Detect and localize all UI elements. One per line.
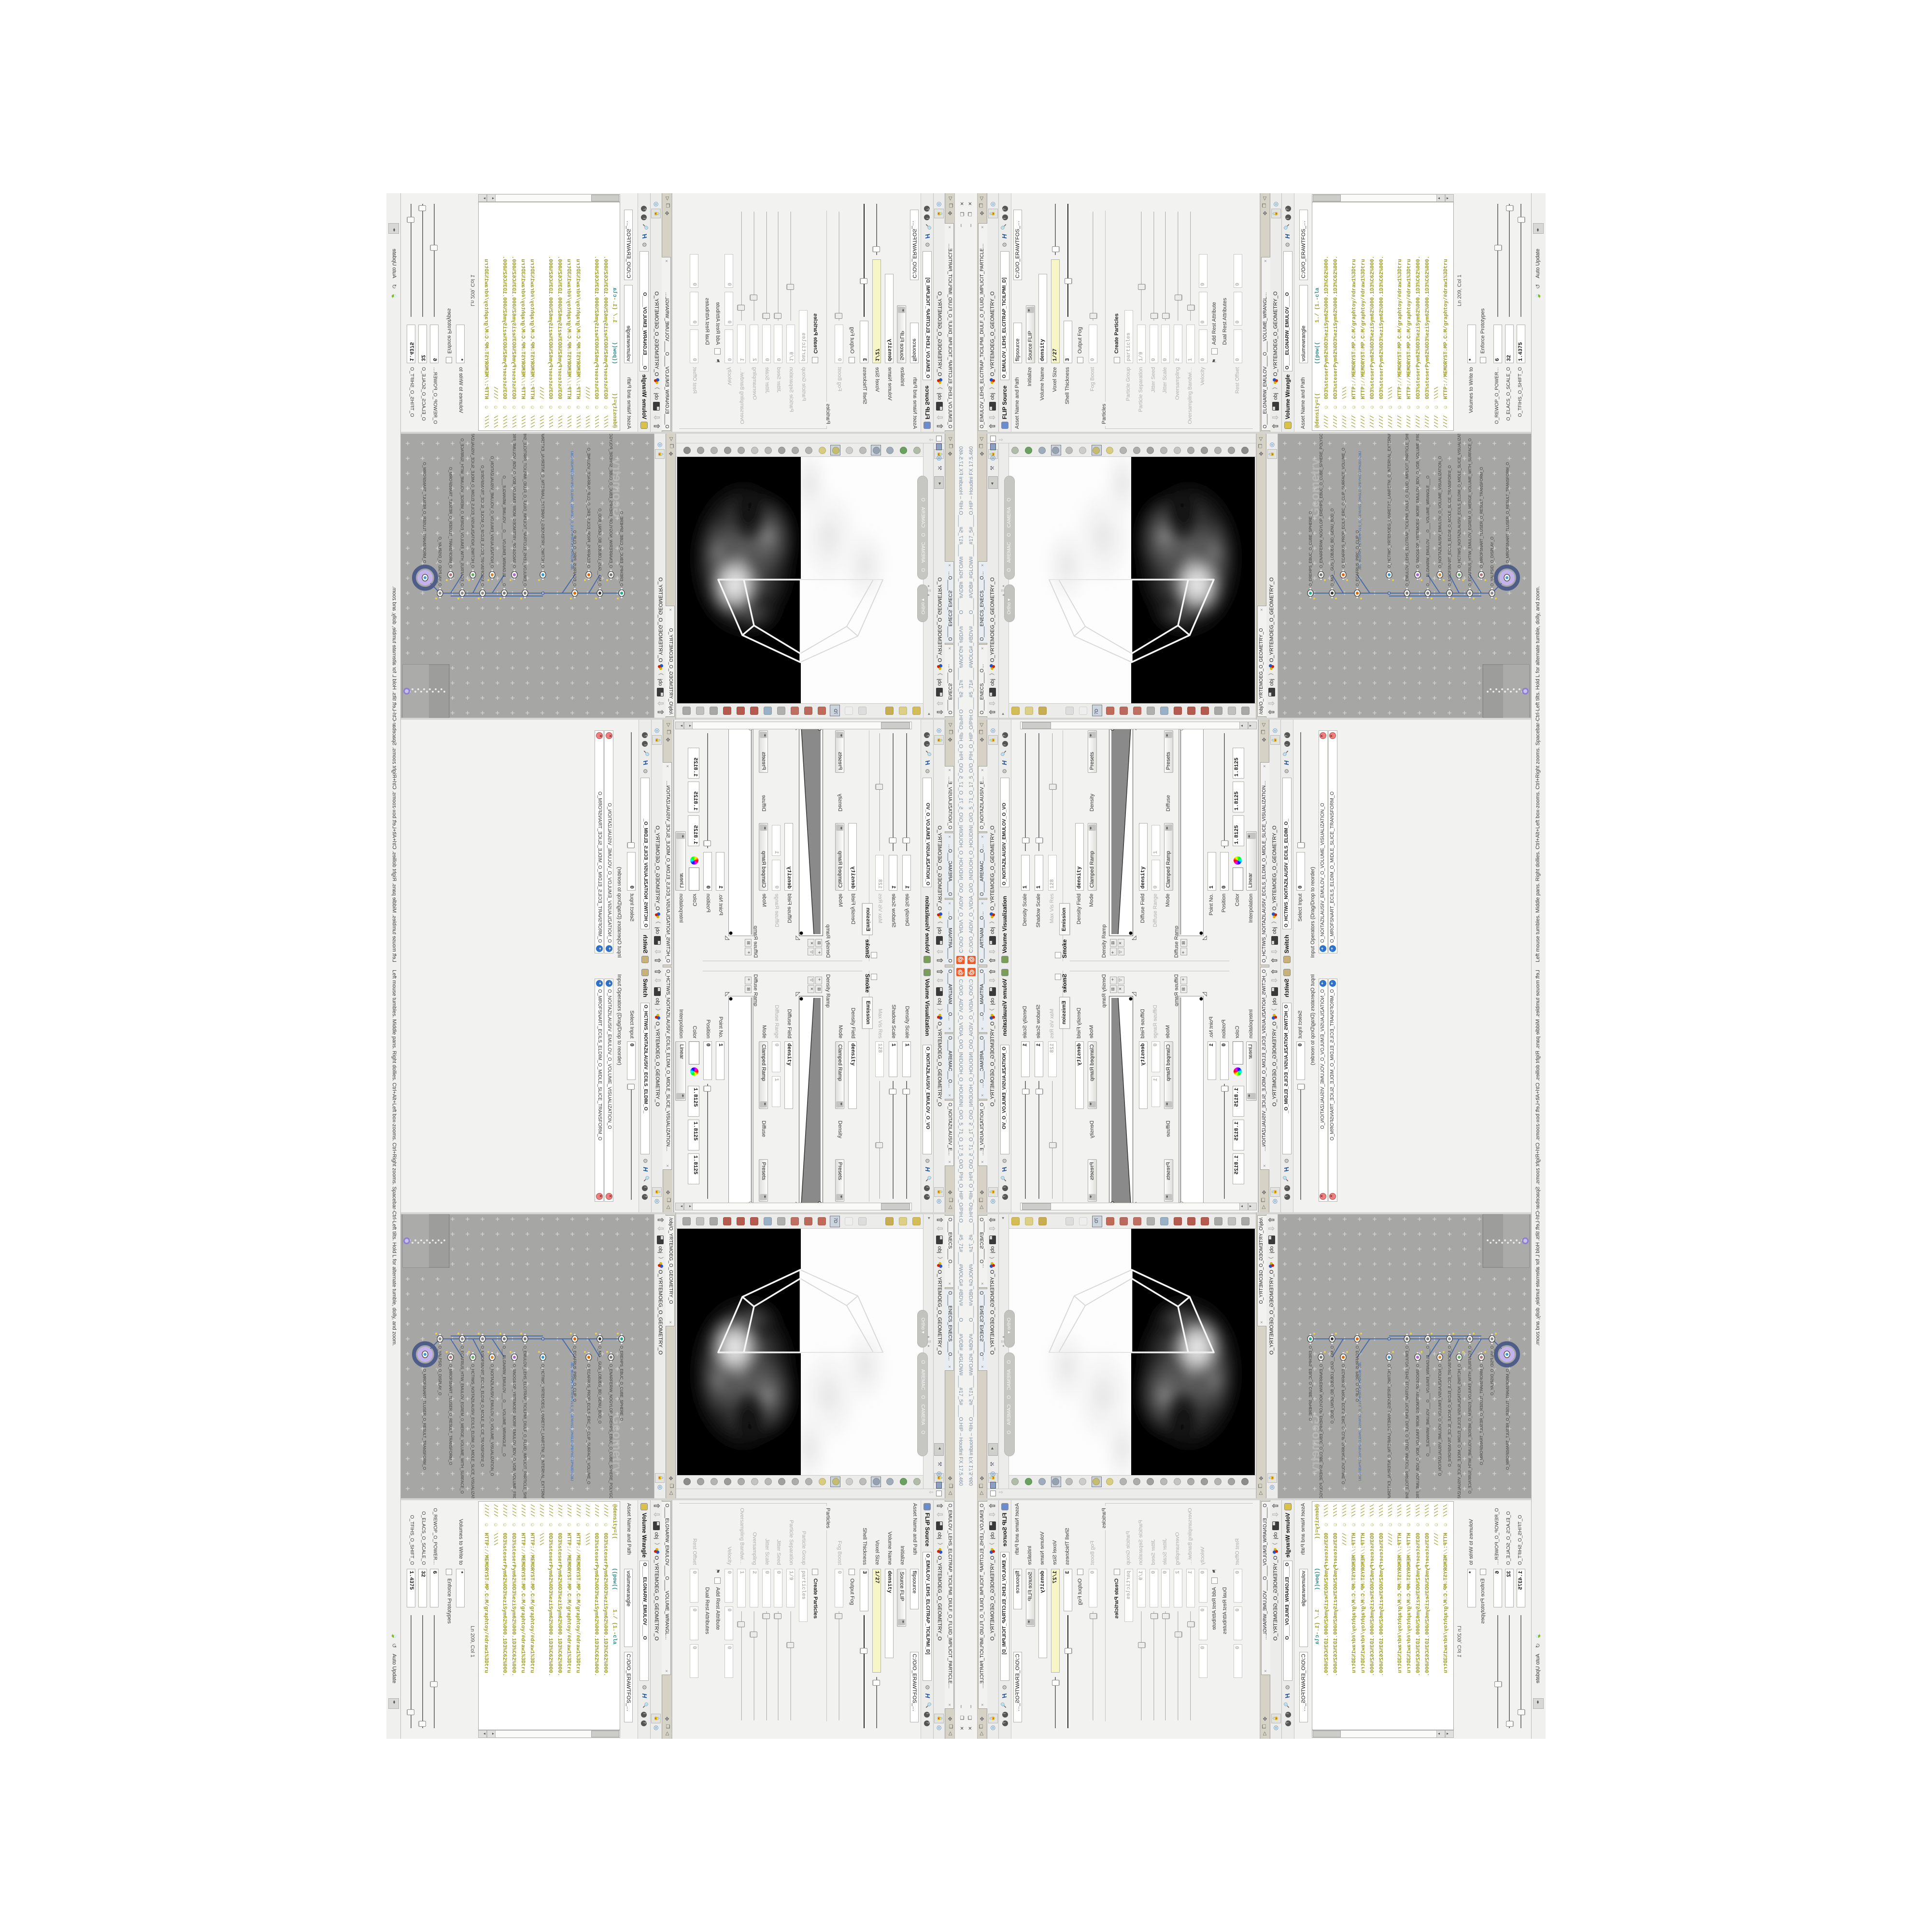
svg-text:O_EREHPS_EBUC_O_CUBE_SPHERE_O: O_EREHPS_EBUC_O_CUBE_SPHERE_O — [1308, 511, 1313, 586]
svg-text:O_HCTIWS_NOITAZILAUSIV_ECILS_E: O_HCTIWS_NOITAZILAUSIV_ECILS_ELDIM_O_MID… — [470, 1364, 475, 1498]
svg-text:O_EREHPS_EBUC_O_CUBE_SPHERE_O: O_EREHPS_EBUC_O_CUBE_SPHERE_O — [1308, 1346, 1313, 1421]
svg-text:O_HCTIWS_YRTEMOEG_LANRETXE_LAN: O_HCTIWS_YRTEMOEG_LANRETXE_LANRETNI_O_IN… — [540, 434, 545, 568]
svg-text:O_HCTIWS_NOITAZILAUSIV_ECILS_E: O_HCTIWS_NOITAZILAUSIV_ECILS_ELDIM_O_MID… — [1457, 1364, 1462, 1498]
svg-text:O_SNOGILOP_YRTEMOEG_MORF_EMULO: O_SNOGILOP_YRTEMOEG_MORF_EMULOV_BDV_O_VD… — [512, 434, 516, 568]
svg-text:O_EMULOV_LEHS_ELCITRAP_TICILPM: O_EMULOV_LEHS_ELCITRAP_TICILPMI_DIULF_O_… — [523, 1346, 527, 1498]
svg-text:O_ECAFRUS_PROP_ECILS_ERC_O_CLI: O_ECAFRUS_PROP_ECILS_ERC_O_CLIP_SURFACE_… — [1341, 448, 1346, 568]
svg-text:O_MROFSNART_TLUSER_O_RESULT_TR: O_MROFSNART_TLUSER_O_RESULT_TRANSFORM_O — [448, 1364, 453, 1465]
svg-text:O_SNOGILOP_YRTEMOEG_MORF_EMULO: O_SNOGILOP_YRTEMOEG_MORF_EMULOV_BDV_O_VD… — [1416, 434, 1420, 568]
svg-text:O_MROFSNART_ECILS_ELDIM_O_MIDL: O_MROFSNART_ECILS_ELDIM_O_MIDLE_SLICE_TR… — [480, 1346, 484, 1467]
svg-text:O_MO__GUS_LOBJEG_BD_GENU_BOD_O: O_MO__GUS_LOBJEG_BD_GENU_BOD_O — [597, 509, 602, 586]
svg-text:O_ENARFERIW_NOGYLOP_EREHPS_EBU: O_ENARFERIW_NOGYLOP_EREHPS_EBUC_O_CUBE_S… — [1319, 434, 1323, 568]
svg-text:O___ELGNARW_EMULOV___O___VOLUM: O___ELGNARW_EMULOV___O___VOLUME_WRANGLE_… — [1426, 476, 1430, 586]
svg-text:O_NOITAZILAUSIV_EMULOV_O_VOLUM: O_NOITAZILAUSIV_EMULOV_O_VOLUME_VISUALIZ… — [490, 456, 494, 568]
svg-text:O_EMULOV_LEHS_ELCITRAP_TICILPM: O_EMULOV_LEHS_ELCITRAP_TICILPMI_DIULF_O_… — [1405, 434, 1409, 586]
svg-text:O_NOITAZILAUSIV_EMULOV_O_VOLUM: O_NOITAZILAUSIV_EMULOV_O_VOLUME_VISUALIZ… — [1438, 456, 1442, 568]
svg-text:O_EMULOV_LEHS_ELCITRAP_TICILPM: O_EMULOV_LEHS_ELCITRAP_TICILPMI_DIULF_O_… — [523, 434, 527, 586]
svg-text:O_MROFSNART_ECILS_ELDIM_O_MIDL: O_MROFSNART_ECILS_ELDIM_O_MIDLE_SLICE_TR… — [480, 465, 484, 586]
svg-text:O_MO__GUS_LOBJEG_BD_GENU_BOD_O: O_MO__GUS_LOBJEG_BD_GENU_BOD_O — [1330, 1346, 1335, 1423]
svg-text:O_ENARFERIW_NOGYLOP_EREHPS_EBU: O_ENARFERIW_NOGYLOP_EREHPS_EBUC_O_CUBE_S… — [609, 1364, 613, 1498]
svg-text:O_ECAFRUS_PROP_ECILS_ERC_O_CLI: O_ECAFRUS_PROP_ECILS_ERC_O_CLIP_SURFACE_… — [586, 1364, 591, 1484]
svg-text:O_NOITAZILAUSIV_EMULOV_O_VOLUM: O_NOITAZILAUSIV_EMULOV_O_VOLUME_VISUALIZ… — [1438, 1364, 1442, 1476]
svg-text:O___ELGNARW_EMULOV___O___VOLUM: O___ELGNARW_EMULOV___O___VOLUME_WRANGLE_… — [502, 1346, 506, 1456]
svg-text:O_SNOGILOP_YRTEMOEG_MORF_EMULO: O_SNOGILOP_YRTEMOEG_MORF_EMULOV_BDV_O_VD… — [512, 1364, 516, 1498]
svg-text:O_YALPSID_O_DISPLAY_O: O_YALPSID_O_DISPLAY_O — [438, 537, 442, 586]
svg-text:O_ENARFERIW_NOGYLOP_EREHPS_EBU: O_ENARFERIW_NOGYLOP_EREHPS_EBUC_O_CUBE_S… — [609, 434, 613, 568]
svg-text:JBO.MO3%PETS.YRI%PVLS_O_GENVIS: JBO.MO3%PETS.YRI%PVLS_O_GENVISS_O%SLD%PB… — [570, 451, 573, 570]
svg-text:O_HCTIWS_YRTEMOEG_LANRETXE_LAN: O_HCTIWS_YRTEMOEG_LANRETXE_LANRETNI_O_IN… — [540, 1364, 545, 1498]
svg-text:O_ECAFRUS_PROP_ECILS_ERC_O_CLI: O_ECAFRUS_PROP_ECILS_ERC_O_CLIP_SURFACE_… — [1341, 1364, 1346, 1484]
svg-text:O_HCTIWS_NOITAZILAUSIV_ECILS_E: O_HCTIWS_NOITAZILAUSIV_ECILS_ELDIM_O_MID… — [1457, 434, 1462, 568]
svg-text:JBO.MO3%PETS.YRI%PVLS_O_GENVIS: JBO.MO3%PETS.YRI%PVLS_O_GENVISS_O%SLD%PB… — [570, 1362, 573, 1481]
svg-text:O_MROFSNART_TLUSER_O_RESULT_TR: O_MROFSNART_TLUSER_O_RESULT_TRANSFORM_O — [448, 467, 453, 568]
svg-text:O_ECAFRUS_PROP_ECILS_ERC_O_CLI: O_ECAFRUS_PROP_ECILS_ERC_O_CLIP_SURFACE_… — [586, 448, 591, 568]
svg-text:O_MROFSNART_TLUSER_O_RESULT_TR: O_MROFSNART_TLUSER_O_RESULT_TRANSFORM_O — [1479, 1364, 1484, 1465]
svg-text:O_EREHPS_EBUC_O_CUBE_SPHERE_O: O_EREHPS_EBUC_O_CUBE_SPHERE_O — [619, 511, 624, 586]
svg-text:O_HCTIWS_YRTEMOEG_LANRETXE_LAN: O_HCTIWS_YRTEMOEG_LANRETXE_LANRETNI_O_IN… — [1387, 1364, 1392, 1498]
svg-text:O_MROFSNART_ECILS_ELDIM_O_MIDL: O_MROFSNART_ECILS_ELDIM_O_MIDLE_SLICE_TR… — [1448, 465, 1452, 586]
svg-text:O_YALPSID_O_DISPLAY_O: O_YALPSID_O_DISPLAY_O — [1490, 537, 1494, 586]
svg-text:O_YALPSID_O_DISPLAY_O: O_YALPSID_O_DISPLAY_O — [438, 1346, 442, 1395]
svg-text:O_YALPSID_O_DISPLAY_O: O_YALPSID_O_DISPLAY_O — [1490, 1346, 1494, 1395]
svg-text:O_MO__GUS_LOBJEG_BD_GENU_BOD_O: O_MO__GUS_LOBJEG_BD_GENU_BOD_O — [1330, 509, 1335, 586]
svg-text:O_ENARFERIW_NOGYLOP_EREHPS_EBU: O_ENARFERIW_NOGYLOP_EREHPS_EBUC_O_CUBE_S… — [1319, 1364, 1323, 1498]
svg-text:O_EMULOV_LEHS_ELCITRAP_TICILPM: O_EMULOV_LEHS_ELCITRAP_TICILPMI_DIULF_O_… — [1405, 1346, 1409, 1498]
svg-text:O_EREHPS_EBUC_O_CUBE_SPHERE_O: O_EREHPS_EBUC_O_CUBE_SPHERE_O — [619, 1346, 624, 1421]
svg-text:O_MROFSNART_ECILS_ELDIM_O_MIDL: O_MROFSNART_ECILS_ELDIM_O_MIDLE_SLICE_TR… — [1448, 1346, 1452, 1467]
svg-text:O_HCTIWS_NOITAZILAUSIV_ECILS_E: O_HCTIWS_NOITAZILAUSIV_ECILS_ELDIM_O_MID… — [470, 434, 475, 568]
svg-text:O_MO__GUS_LOBJEG_BD_GENU_BOD_O: O_MO__GUS_LOBJEG_BD_GENU_BOD_O — [597, 1346, 602, 1423]
svg-text:O_SNOGILOP_YRTEMOEG_MORF_EMULO: O_SNOGILOP_YRTEMOEG_MORF_EMULOV_BDV_O_VD… — [1416, 1364, 1420, 1498]
svg-text:O___ELGNARW_EMULOV___O___VOLUM: O___ELGNARW_EMULOV___O___VOLUME_WRANGLE_… — [1426, 1346, 1430, 1456]
svg-text:O___ELGNARW_EMULOV___O___VOLUM: O___ELGNARW_EMULOV___O___VOLUME_WRANGLE_… — [502, 476, 506, 586]
svg-text:O_MROFSNART_TLUSER_O_RESULT_TR: O_MROFSNART_TLUSER_O_RESULT_TRANSFORM_O — [1479, 467, 1484, 568]
svg-text:O_HCTIWS_YRTEMOEG_LANRETXE_LAN: O_HCTIWS_YRTEMOEG_LANRETXE_LANRETNI_O_IN… — [1387, 434, 1392, 568]
svg-text:JBO.MO3%PETS.YRI%PVLS_O_GENVIS: JBO.MO3%PETS.YRI%PVLS_O_GENVISS_O%SLD%PB… — [1359, 451, 1362, 570]
svg-text:O_NOITAZILAUSIV_EMULOV_O_VOLUM: O_NOITAZILAUSIV_EMULOV_O_VOLUME_VISUALIZ… — [490, 1364, 494, 1476]
svg-text:JBO.MO3%PETS.YRI%PVLS_O_GENVIS: JBO.MO3%PETS.YRI%PVLS_O_GENVISS_O%SLD%PB… — [1359, 1362, 1362, 1481]
